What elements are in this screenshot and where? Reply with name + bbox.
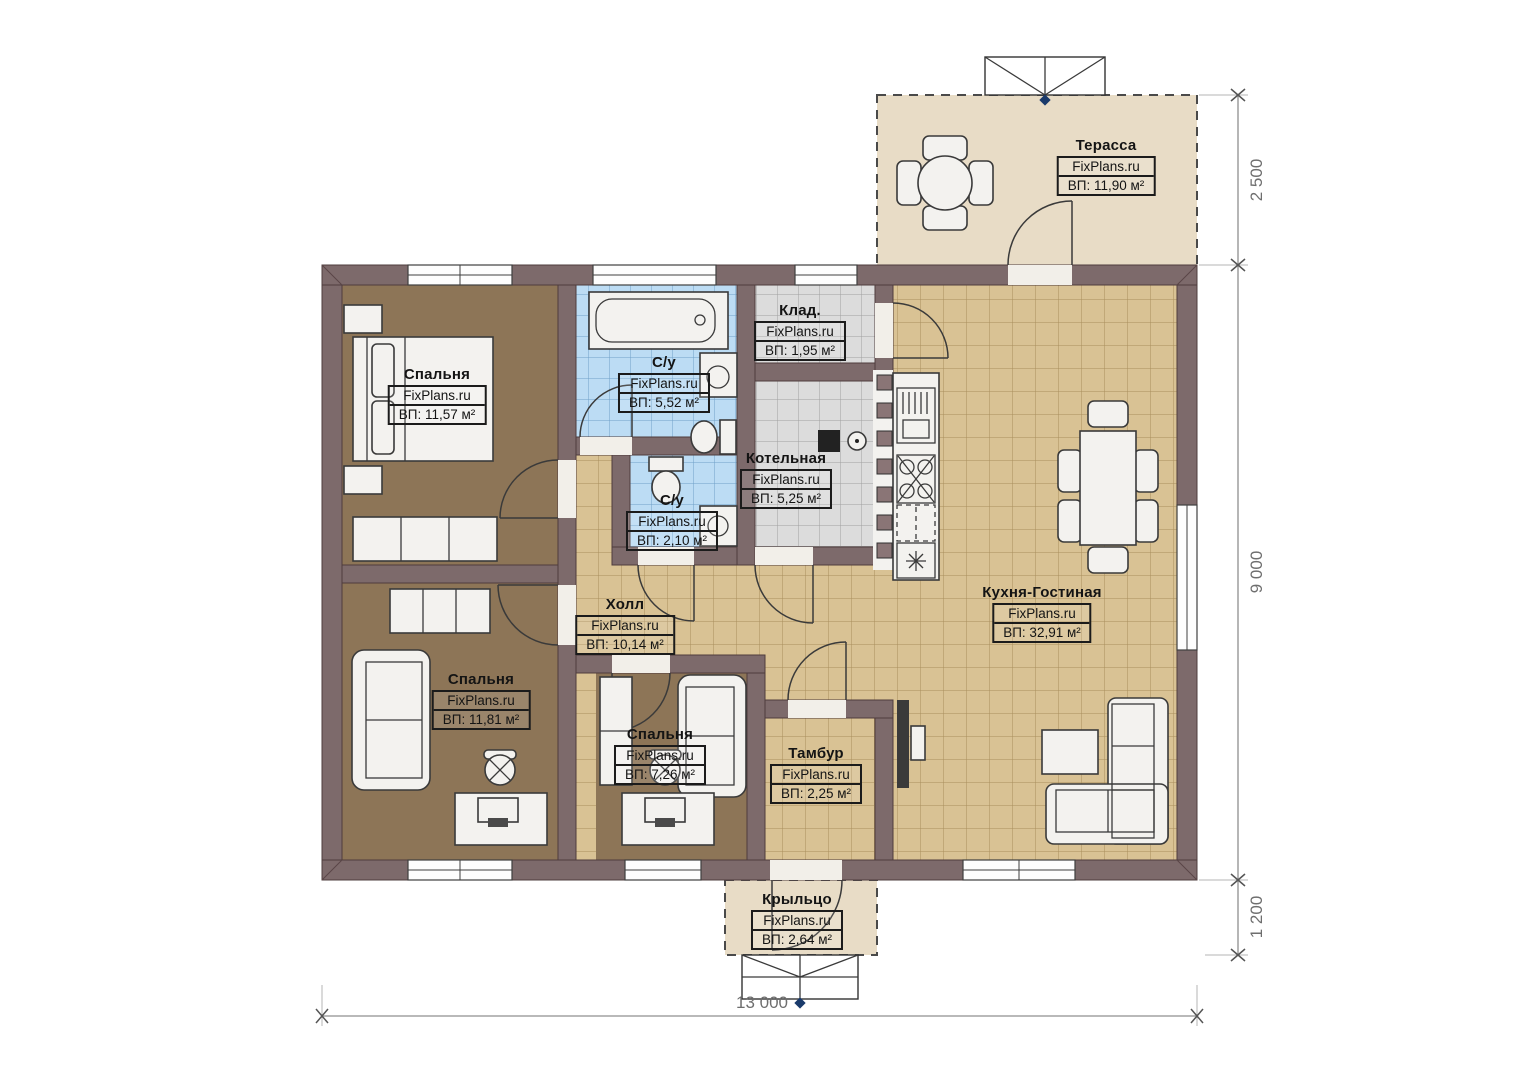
room-area: ВП: 5,25 м² [742,490,830,507]
room-area: ВП: 10,14 м² [577,636,673,653]
room-info-box: FixPlans.ru ВП: 10,14 м² [575,615,675,655]
room-label-bathroom-small: С/у FixPlans.ru ВП: 2,10 м² [626,492,718,551]
room-info-box: FixPlans.ru ВП: 11,81 м² [432,690,531,730]
dimension-terrace-depth: 2 500 [1247,159,1267,202]
window-icon [795,265,857,285]
nightstand-icon [344,466,382,494]
room-name: Терасса [1057,137,1156,154]
room-name: Спальня [432,671,531,688]
room-area: ВП: 11,57 м² [390,406,485,423]
room-area: ВП: 2,10 м² [628,532,716,549]
room-name: Холл [575,596,675,613]
sofa-icon [352,650,430,790]
room-name: Тамбур [770,745,862,762]
room-info-box: FixPlans.ru ВП: 32,91 м² [992,603,1092,643]
room-label-pantry: Клад. FixPlans.ru ВП: 1,95 м² [754,302,846,361]
room-name: С/у [626,492,718,509]
watermark: FixPlans.ru [628,513,716,532]
window-icon [408,265,512,285]
room-label-kitchen-living: Кухня-Гостиная FixPlans.ru ВП: 32,91 м² [982,584,1101,643]
room-area: ВП: 11,90 м² [1059,177,1154,194]
room-area: ВП: 1,95 м² [756,342,844,359]
room-label-terrace: Терасса FixPlans.ru ВП: 11,90 м² [1057,137,1156,196]
watermark: FixPlans.ru [994,605,1090,624]
desk-icon [455,793,547,845]
dimension-house-width: 13 000 [736,993,788,1013]
room-label-bedroom-1: Спальня FixPlans.ru ВП: 11,57 м² [388,366,487,425]
room-label-bedroom-2: Спальня FixPlans.ru ВП: 11,81 м² [432,671,531,730]
desk-icon [622,793,714,845]
room-area: ВП: 2,64 м² [753,931,841,948]
room-label-boiler-room: Котельная FixPlans.ru ВП: 5,25 м² [740,450,832,509]
watermark: FixPlans.ru [772,766,860,785]
room-area: ВП: 32,91 м² [994,624,1090,641]
room-info-box: FixPlans.ru ВП: 2,64 м² [751,910,843,950]
watermark: FixPlans.ru [390,387,485,406]
window-icon [593,265,716,285]
room-label-hall: Холл FixPlans.ru ВП: 10,14 м² [575,596,675,655]
watermark: FixPlans.ru [616,747,704,766]
room-label-vestibule: Тамбур FixPlans.ru ВП: 2,25 м² [770,745,862,804]
kitchen-counter-icon [873,370,939,580]
window-icon [1177,505,1197,650]
room-label-bathroom-main: С/у FixPlans.ru ВП: 5,52 м² [618,354,710,413]
room-label-porch: Крыльцо FixPlans.ru ВП: 2,64 м² [751,891,843,950]
office-chair-icon [484,750,516,785]
room-name: Крыльцо [751,891,843,908]
watermark: FixPlans.ru [756,323,844,342]
room-area: ВП: 2,25 м² [772,785,860,802]
room-info-box: FixPlans.ru ВП: 1,95 м² [754,321,846,361]
watermark: FixPlans.ru [1059,158,1154,177]
room-name: Кухня-Гостиная [982,584,1101,601]
watermark: FixPlans.ru [753,912,841,931]
window-icon [408,860,512,880]
bathtub-icon [589,292,728,349]
room-info-box: FixPlans.ru ВП: 11,90 м² [1057,156,1156,196]
nightstand-icon [344,305,382,333]
wardrobe-icon [390,589,490,633]
watermark: FixPlans.ru [434,692,529,711]
room-info-box: FixPlans.ru ВП: 5,52 м² [618,373,710,413]
window-icon [963,860,1075,880]
watermark: FixPlans.ru [742,471,830,490]
room-name: Клад. [754,302,846,319]
wardrobe-icon [353,517,497,561]
room-name: Спальня [614,726,706,743]
floor-plan-page: Терасса FixPlans.ru ВП: 11,90 м² Спальня… [0,0,1528,1080]
room-info-box: FixPlans.ru ВП: 2,10 м² [626,511,718,551]
room-name: Котельная [740,450,832,467]
dimension-house-depth: 9 000 [1247,551,1267,594]
dimension-porch-depth: 1 200 [1247,896,1267,939]
room-area: ВП: 11,81 м² [434,711,529,728]
coffee-table-icon [1042,730,1098,774]
window-icon [625,860,701,880]
room-area: ВП: 7,26 м² [616,766,704,783]
watermark: FixPlans.ru [620,375,708,394]
room-name: Спальня [388,366,487,383]
room-name: С/у [618,354,710,371]
room-info-box: FixPlans.ru ВП: 7,26 м² [614,745,706,785]
room-area: ВП: 5,52 м² [620,394,708,411]
room-label-bedroom-3: Спальня FixPlans.ru ВП: 7,26 м² [614,726,706,785]
toilet-icon [691,420,736,454]
room-info-box: FixPlans.ru ВП: 2,25 м² [770,764,862,804]
room-info-box: FixPlans.ru ВП: 11,57 м² [388,385,487,425]
watermark: FixPlans.ru [577,617,673,636]
room-info-box: FixPlans.ru ВП: 5,25 м² [740,469,832,509]
